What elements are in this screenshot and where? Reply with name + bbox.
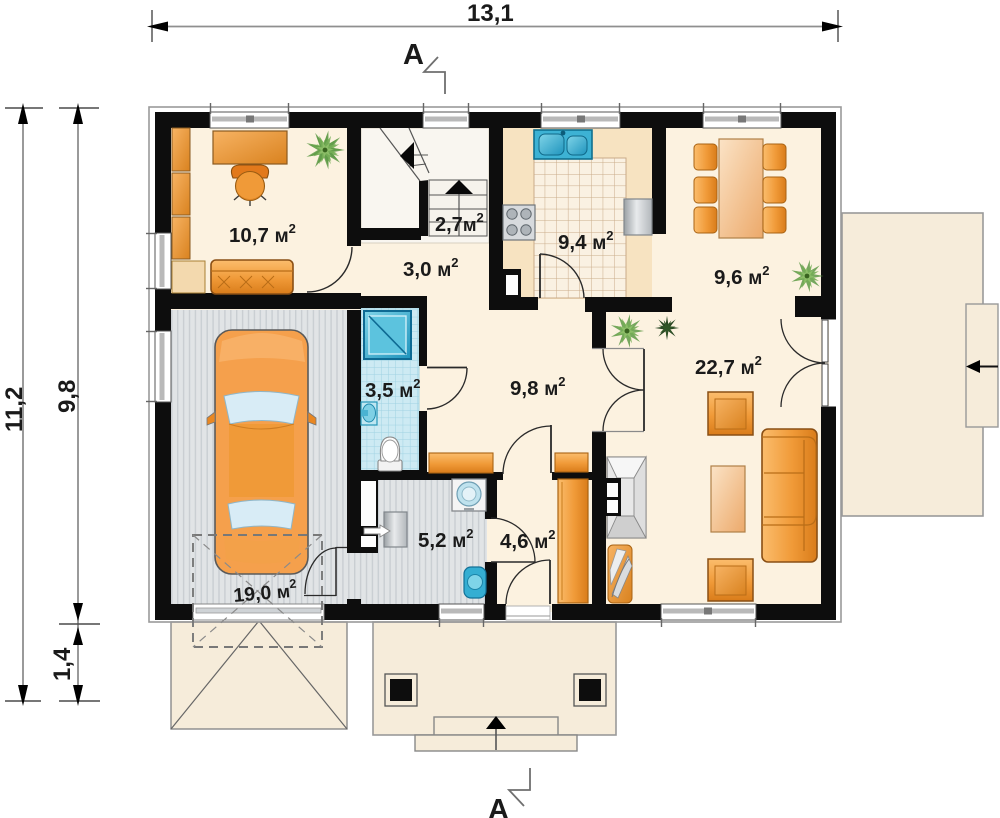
svg-text:13,1: 13,1 [467, 0, 514, 27]
svg-text:9,8: 9,8 [54, 380, 81, 413]
svg-text:2,7м2: 2,7м2 [435, 210, 484, 236]
svg-text:1,4: 1,4 [49, 647, 76, 681]
svg-text:11,2: 11,2 [1, 387, 28, 432]
svg-text:A: A [488, 794, 509, 818]
svg-text:A: A [403, 39, 424, 71]
